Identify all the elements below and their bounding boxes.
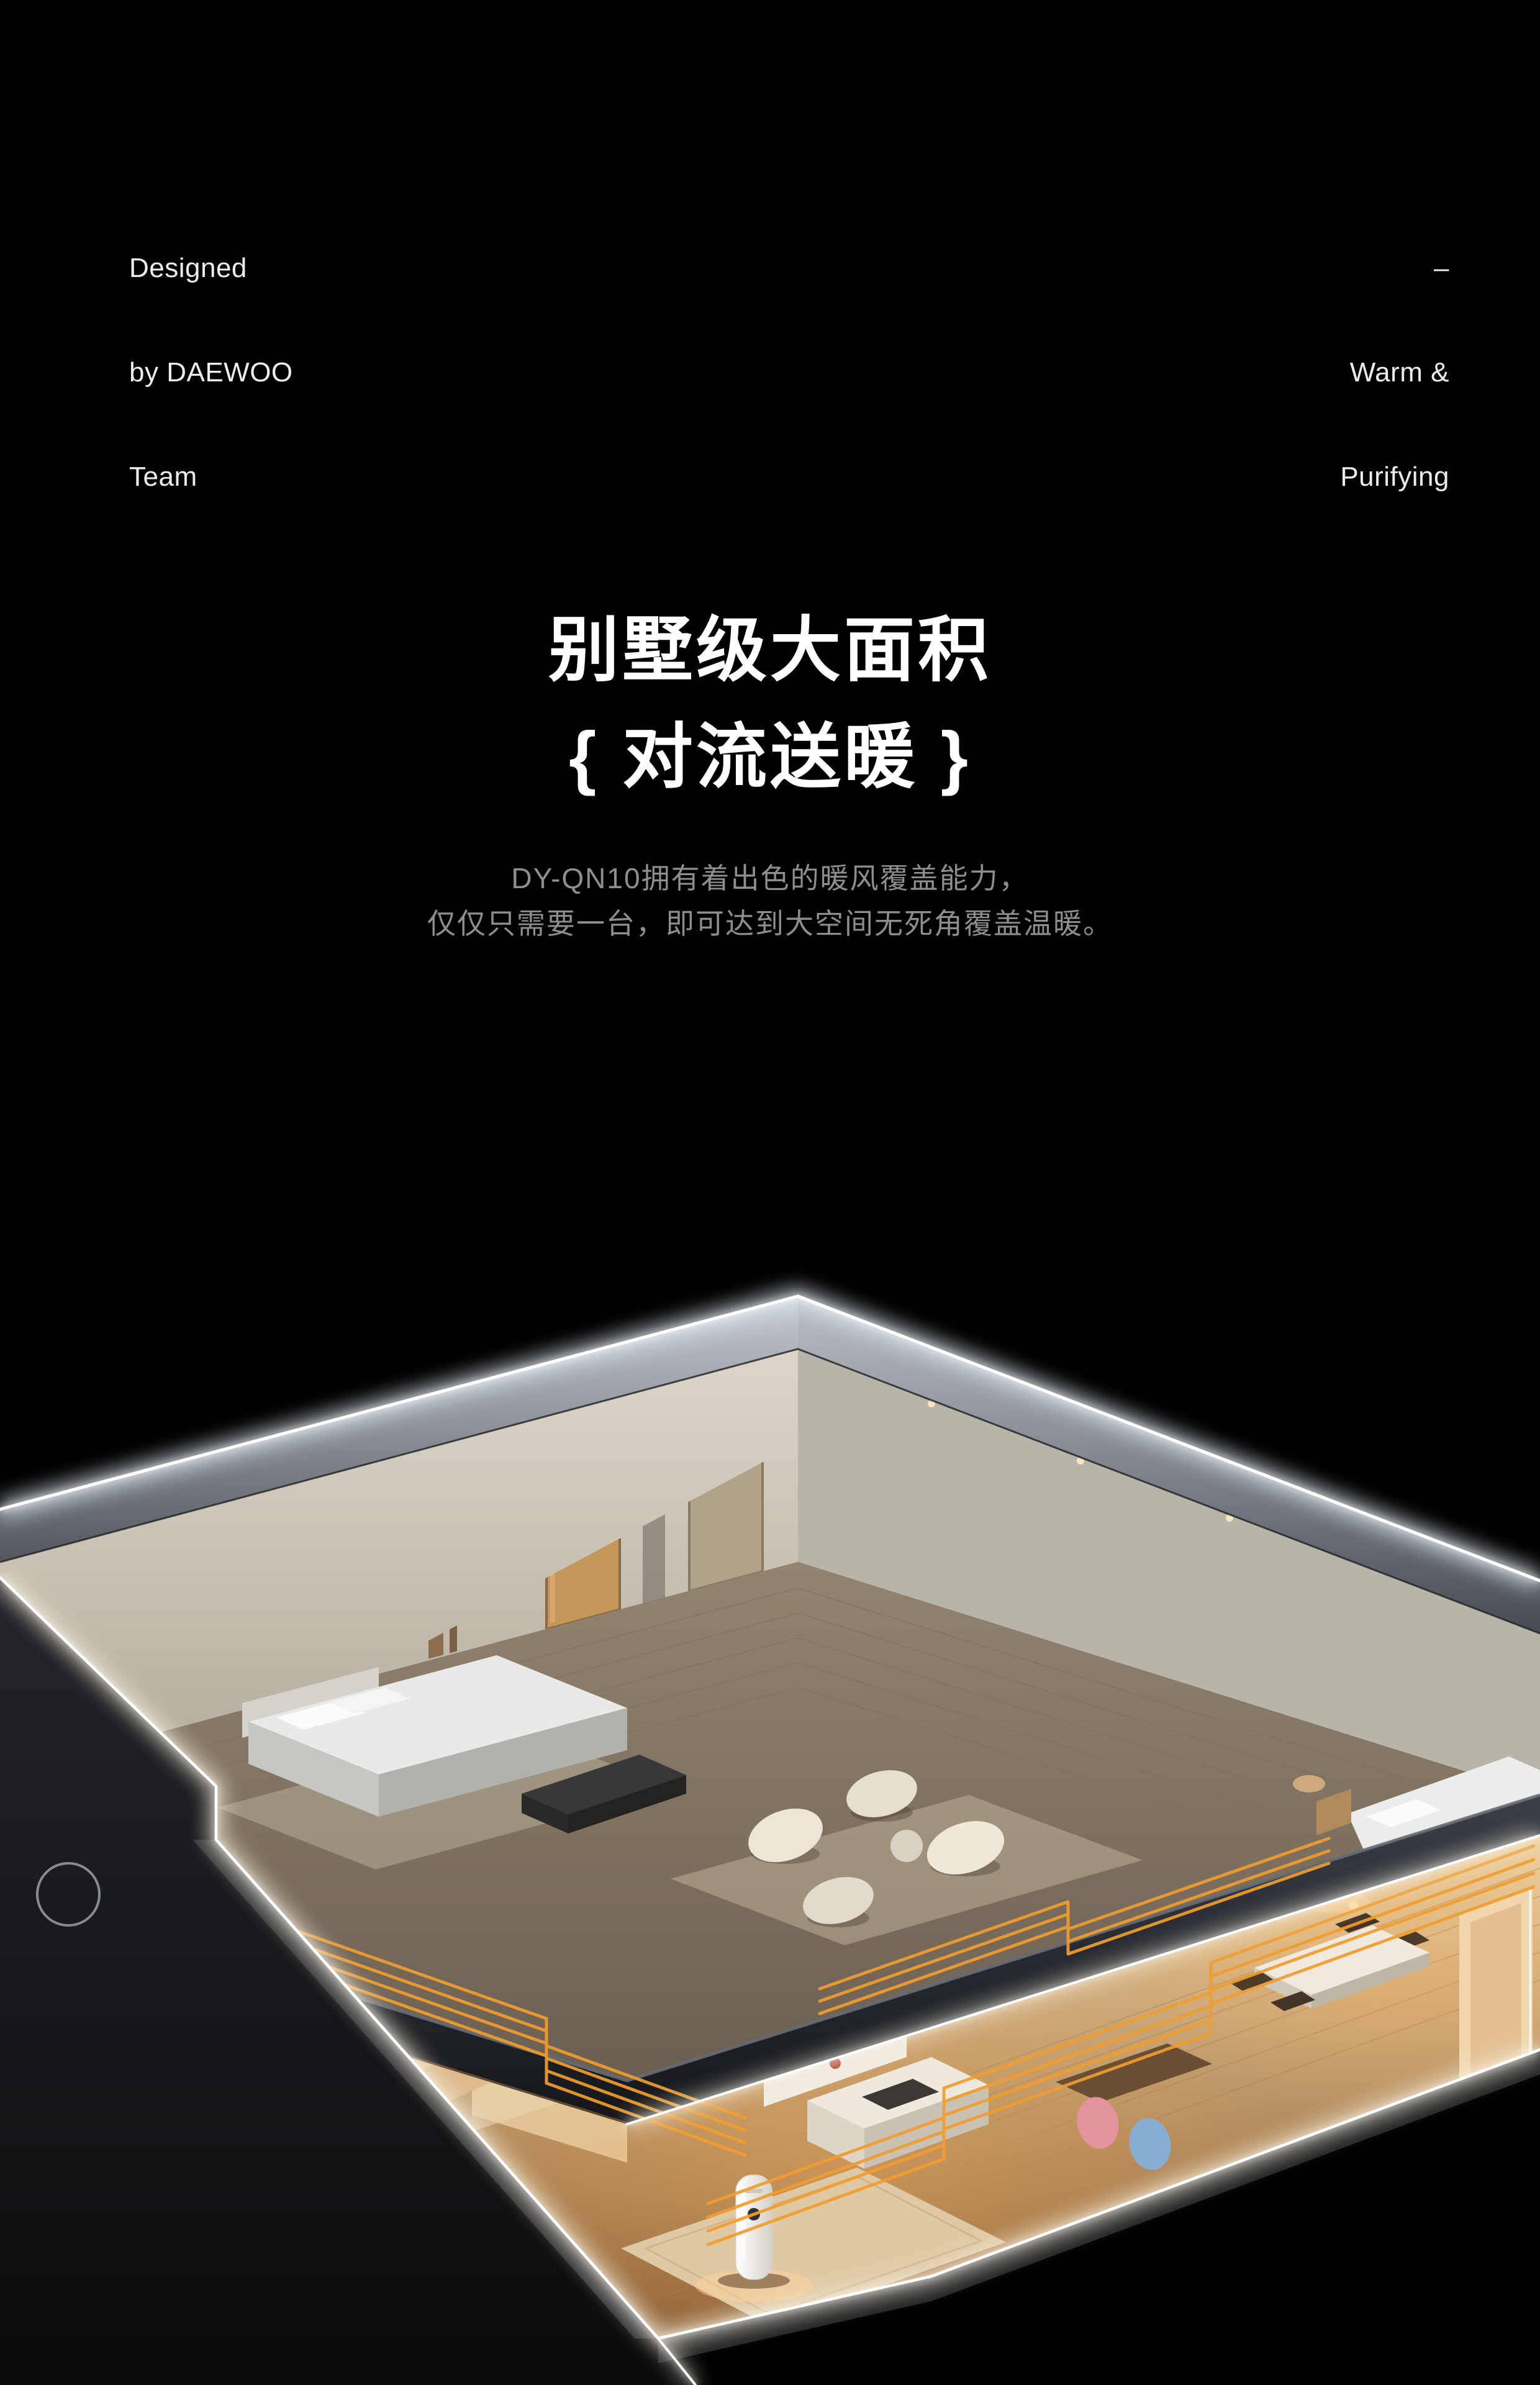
house-cutaway-illustration (0, 1255, 1540, 2385)
title-line2: { 对流送暖 } (0, 704, 1540, 811)
title-line1: 别墅级大面积 (0, 597, 1540, 704)
heater-highlight (741, 2186, 746, 2260)
page-title: 别墅级大面积 { 对流送暖 } (0, 597, 1540, 811)
header-warm-purifying: – Warm & Purifying (1340, 181, 1449, 529)
lamp-glow (1293, 1775, 1325, 1792)
header-designed-by: Designed by DAEWOO Team (129, 181, 293, 529)
side-table (890, 1830, 923, 1862)
header-left-line1: Designed (129, 251, 293, 286)
header-right-dash: – (1340, 251, 1449, 286)
header-left-line2: by DAEWOO (129, 355, 293, 390)
page-subtitle: DY-QN10拥有着出色的暖风覆盖能力， 仅仅只需要一台，即可达到大空间无死角覆… (0, 856, 1540, 947)
header-right-line2: Warm & (1340, 355, 1449, 390)
promo-page: { "page": { "width": 2480, "height": 384… (0, 0, 1540, 2385)
hall-doorway (1459, 1886, 1533, 2144)
subtitle-line2: 仅仅只需要一台，即可达到大空间无死角覆盖温暖。 (0, 901, 1540, 947)
header-left-line3: Team (129, 460, 293, 494)
subtitle-line1: DY-QN10拥有着出色的暖风覆盖能力， (0, 856, 1540, 901)
header-right-line3: Purifying (1340, 460, 1449, 494)
